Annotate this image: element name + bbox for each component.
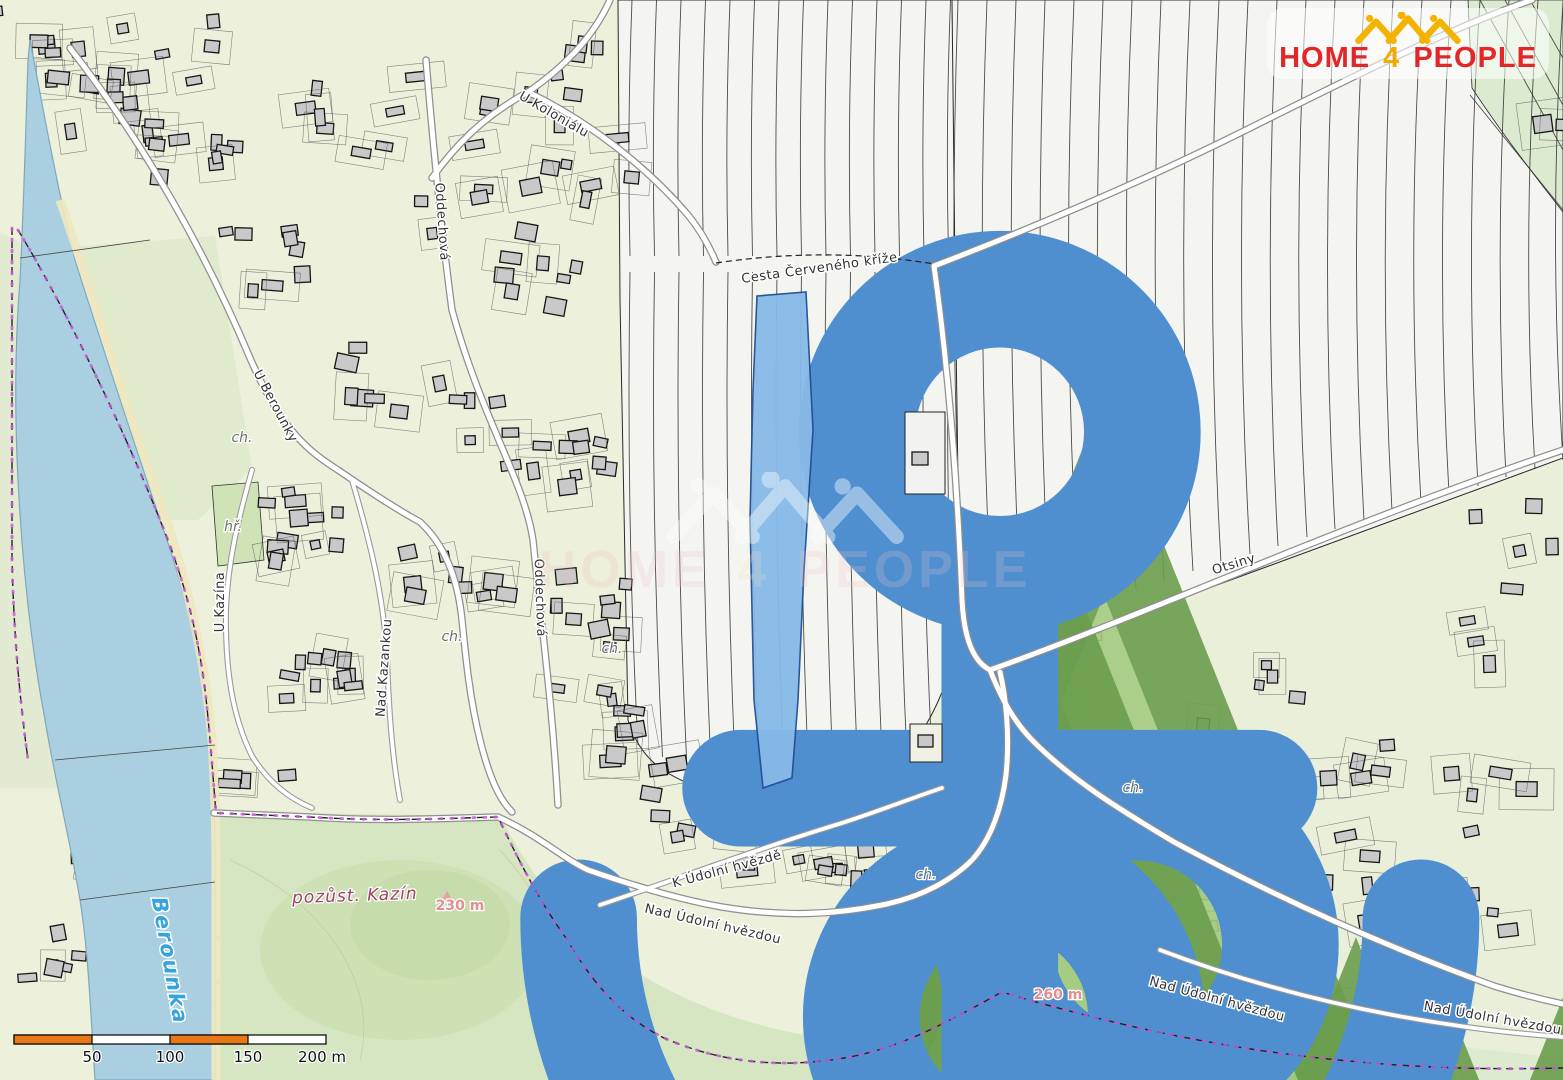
map-svg: 50 100 150 200 m U Koloniálu Oddechová O… bbox=[0, 0, 1563, 1080]
elevation-label-230: 230 m bbox=[436, 898, 485, 914]
map-canvas[interactable]: 50 100 150 200 m U Koloniálu Oddechová O… bbox=[0, 0, 1563, 1080]
scale-tick-150: 150 bbox=[234, 1048, 263, 1066]
street-label-u-kazina: U Kazína bbox=[213, 572, 228, 633]
cottage-abbr-label: ch. bbox=[915, 867, 936, 883]
street-label-oddechova-2: Oddechová bbox=[531, 559, 549, 638]
cemetery-abbr-label: hř. bbox=[224, 519, 242, 535]
cottage-abbr-label: ch. bbox=[601, 641, 622, 657]
brand-logo: HOME 4 PEOPLE bbox=[1267, 8, 1549, 79]
cottage-abbr-label: ch. bbox=[231, 430, 252, 446]
scale-tick-200: 200 m bbox=[298, 1048, 346, 1066]
ruin-label-kazin: pozůst. Kazín bbox=[291, 883, 418, 908]
elevation-label-260: 260 m bbox=[1034, 987, 1083, 1003]
cottage-abbr-label: ch. bbox=[1122, 780, 1143, 796]
scale-tick-50: 50 bbox=[82, 1048, 101, 1066]
logo-text: HOME 4 PEOPLE bbox=[1279, 44, 1537, 73]
cottage-abbr-label: ch. bbox=[441, 629, 462, 645]
scale-tick-100: 100 bbox=[156, 1048, 185, 1066]
logo-roofs-icon bbox=[1348, 12, 1468, 44]
